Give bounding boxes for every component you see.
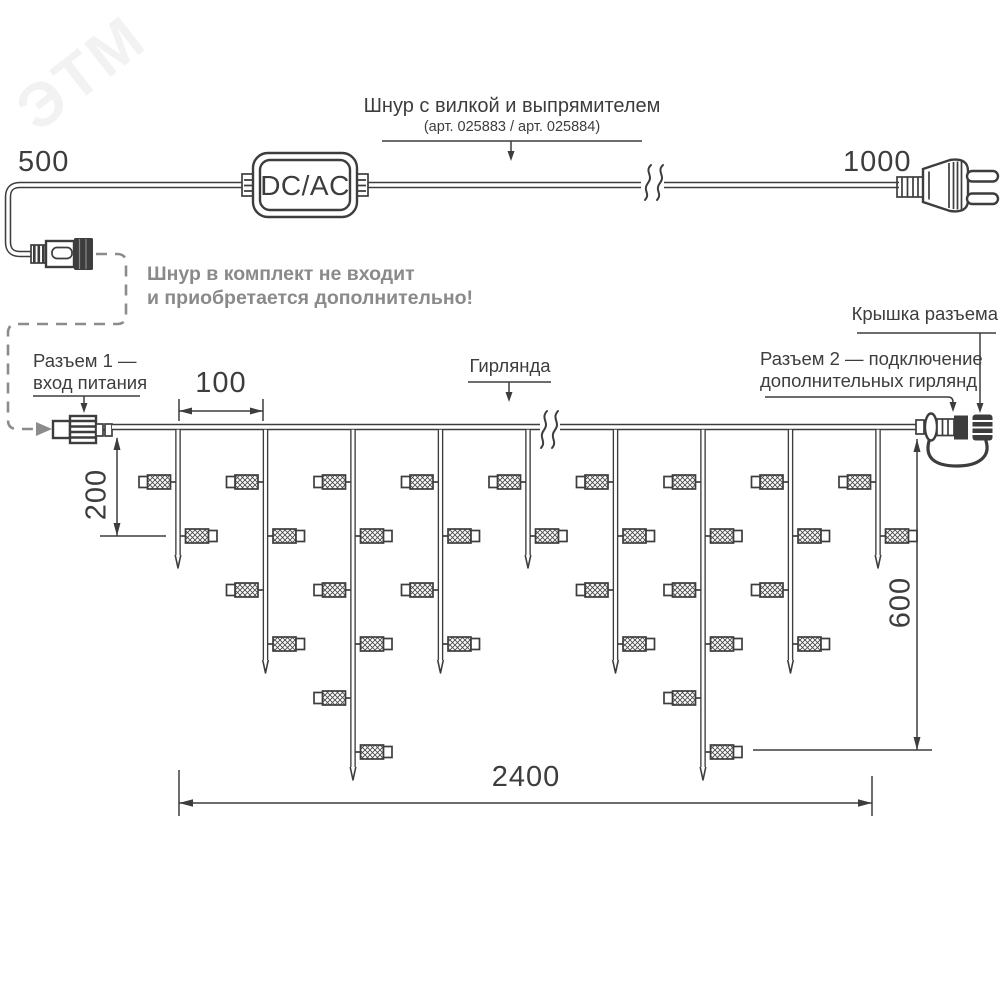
bulb-cap — [734, 639, 743, 650]
converter-label: DC/AC — [253, 170, 357, 202]
gray-arrow-icon — [36, 422, 52, 436]
led-bulb-icon — [448, 529, 471, 543]
cap-label: Крышка разъема — [848, 303, 998, 325]
bulb-cap — [314, 585, 323, 596]
bulb-cap — [402, 477, 411, 488]
led-bulb-icon — [498, 475, 521, 489]
led-bulb-icon — [323, 475, 346, 489]
dim-2400-label: 2400 — [466, 761, 586, 794]
bulb-cap — [909, 531, 918, 542]
led-bulb-icon — [711, 637, 734, 651]
garland-break-icon — [541, 411, 558, 448]
led-bulb-icon — [361, 637, 384, 651]
led-bulb-icon — [886, 529, 909, 543]
led-bulb-icon — [323, 691, 346, 705]
connector2-label-line1: Разъем 2 — подключение — [760, 348, 960, 370]
bulb-cap — [646, 639, 655, 650]
bulb-cap — [402, 585, 411, 596]
dim-600-label: 600 — [885, 570, 918, 636]
bulb-cap — [314, 693, 323, 704]
led-bulb-icon — [673, 691, 696, 705]
mains-plug-icon — [897, 160, 998, 212]
bulb-cap — [734, 747, 743, 758]
connector1-icon — [53, 416, 112, 443]
cord-connector-icon — [31, 238, 93, 270]
bulb-cap — [384, 531, 393, 542]
led-bulb-icon — [273, 529, 296, 543]
cord-articles: (арт. 025883 / арт. 025884) — [362, 119, 662, 135]
bulb-cap — [577, 585, 586, 596]
bulb-cap — [209, 531, 218, 542]
bulb-cap — [471, 531, 480, 542]
led-bulb-icon — [623, 637, 646, 651]
garland-wire — [112, 411, 916, 448]
led-bulb-icon — [536, 529, 559, 543]
connector1-label-line1: Разъем 1 — — [33, 350, 137, 372]
connector2-icon — [916, 414, 993, 467]
led-bulb-icon — [361, 529, 384, 543]
bulb-cap — [734, 531, 743, 542]
led-bulb-icon — [585, 475, 608, 489]
led-bulb-icon — [148, 475, 171, 489]
technical-diagram: ЭТМ 500 1000 Шнур с вилкой и выпрямителе… — [0, 0, 1000, 1000]
connector-cap-icon — [973, 415, 993, 441]
bulb-cap — [577, 477, 586, 488]
cord-break-icon — [645, 165, 663, 200]
bulb-cap — [664, 477, 673, 488]
led-bulb-icon — [673, 475, 696, 489]
bulb-cap — [646, 531, 655, 542]
bulb-cap — [384, 747, 393, 758]
led-bulb-icon — [623, 529, 646, 543]
bulb-cap — [752, 585, 761, 596]
connector2-label-line2: дополнительных гирлянд — [760, 370, 960, 392]
bulb-cap — [471, 639, 480, 650]
dimension-lines — [100, 399, 932, 816]
led-bulb-icon — [186, 529, 209, 543]
cap-tether — [928, 441, 987, 466]
bulb-cap — [314, 477, 323, 488]
bulb-cap — [227, 585, 236, 596]
led-bulb-icon — [361, 745, 384, 759]
dim-100-label: 100 — [179, 367, 263, 400]
bulb-cap — [821, 531, 830, 542]
not-included-dashed-path — [8, 254, 126, 436]
bulb-cap — [489, 477, 498, 488]
bulb-cap — [296, 639, 305, 650]
garland-drops — [139, 430, 917, 780]
led-bulb-icon — [273, 637, 296, 651]
bulb-cap — [664, 693, 673, 704]
cord-title: Шнур с вилкой и выпрямителем — [362, 95, 662, 118]
led-bulb-icon — [235, 583, 258, 597]
bulb-cap — [296, 531, 305, 542]
bulb-cap — [384, 639, 393, 650]
bulb-cap — [139, 477, 148, 488]
led-bulb-icon — [235, 475, 258, 489]
power-cord — [8, 165, 899, 254]
led-bulb-icon — [711, 529, 734, 543]
bulb-cap — [821, 639, 830, 650]
led-bulb-icon — [410, 475, 433, 489]
led-bulb-icon — [760, 583, 783, 597]
led-bulb-icon — [585, 583, 608, 597]
garland-label: Гирлянда — [430, 355, 590, 377]
dim-200-label: 200 — [81, 462, 114, 528]
note-line1: Шнур в комплект не входит — [147, 263, 415, 286]
led-bulb-icon — [798, 529, 821, 543]
bulb-cap — [752, 477, 761, 488]
led-bulb-icon — [448, 637, 471, 651]
led-bulb-icon — [323, 583, 346, 597]
led-bulb-icon — [760, 475, 783, 489]
bulb-cap — [559, 531, 568, 542]
led-bulb-icon — [798, 637, 821, 651]
bulb-cap — [839, 477, 848, 488]
led-bulb-icon — [410, 583, 433, 597]
led-bulb-icon — [711, 745, 734, 759]
led-bulb-icon — [848, 475, 871, 489]
dim-500-label: 500 — [18, 146, 69, 179]
led-bulb-icon — [673, 583, 696, 597]
note-line2: и приобретается дополнительно! — [147, 287, 473, 310]
connector1-label-line2: вход питания — [33, 372, 147, 394]
bulb-cap — [664, 585, 673, 596]
bulb-cap — [227, 477, 236, 488]
dim-1000-label: 1000 — [843, 146, 912, 179]
